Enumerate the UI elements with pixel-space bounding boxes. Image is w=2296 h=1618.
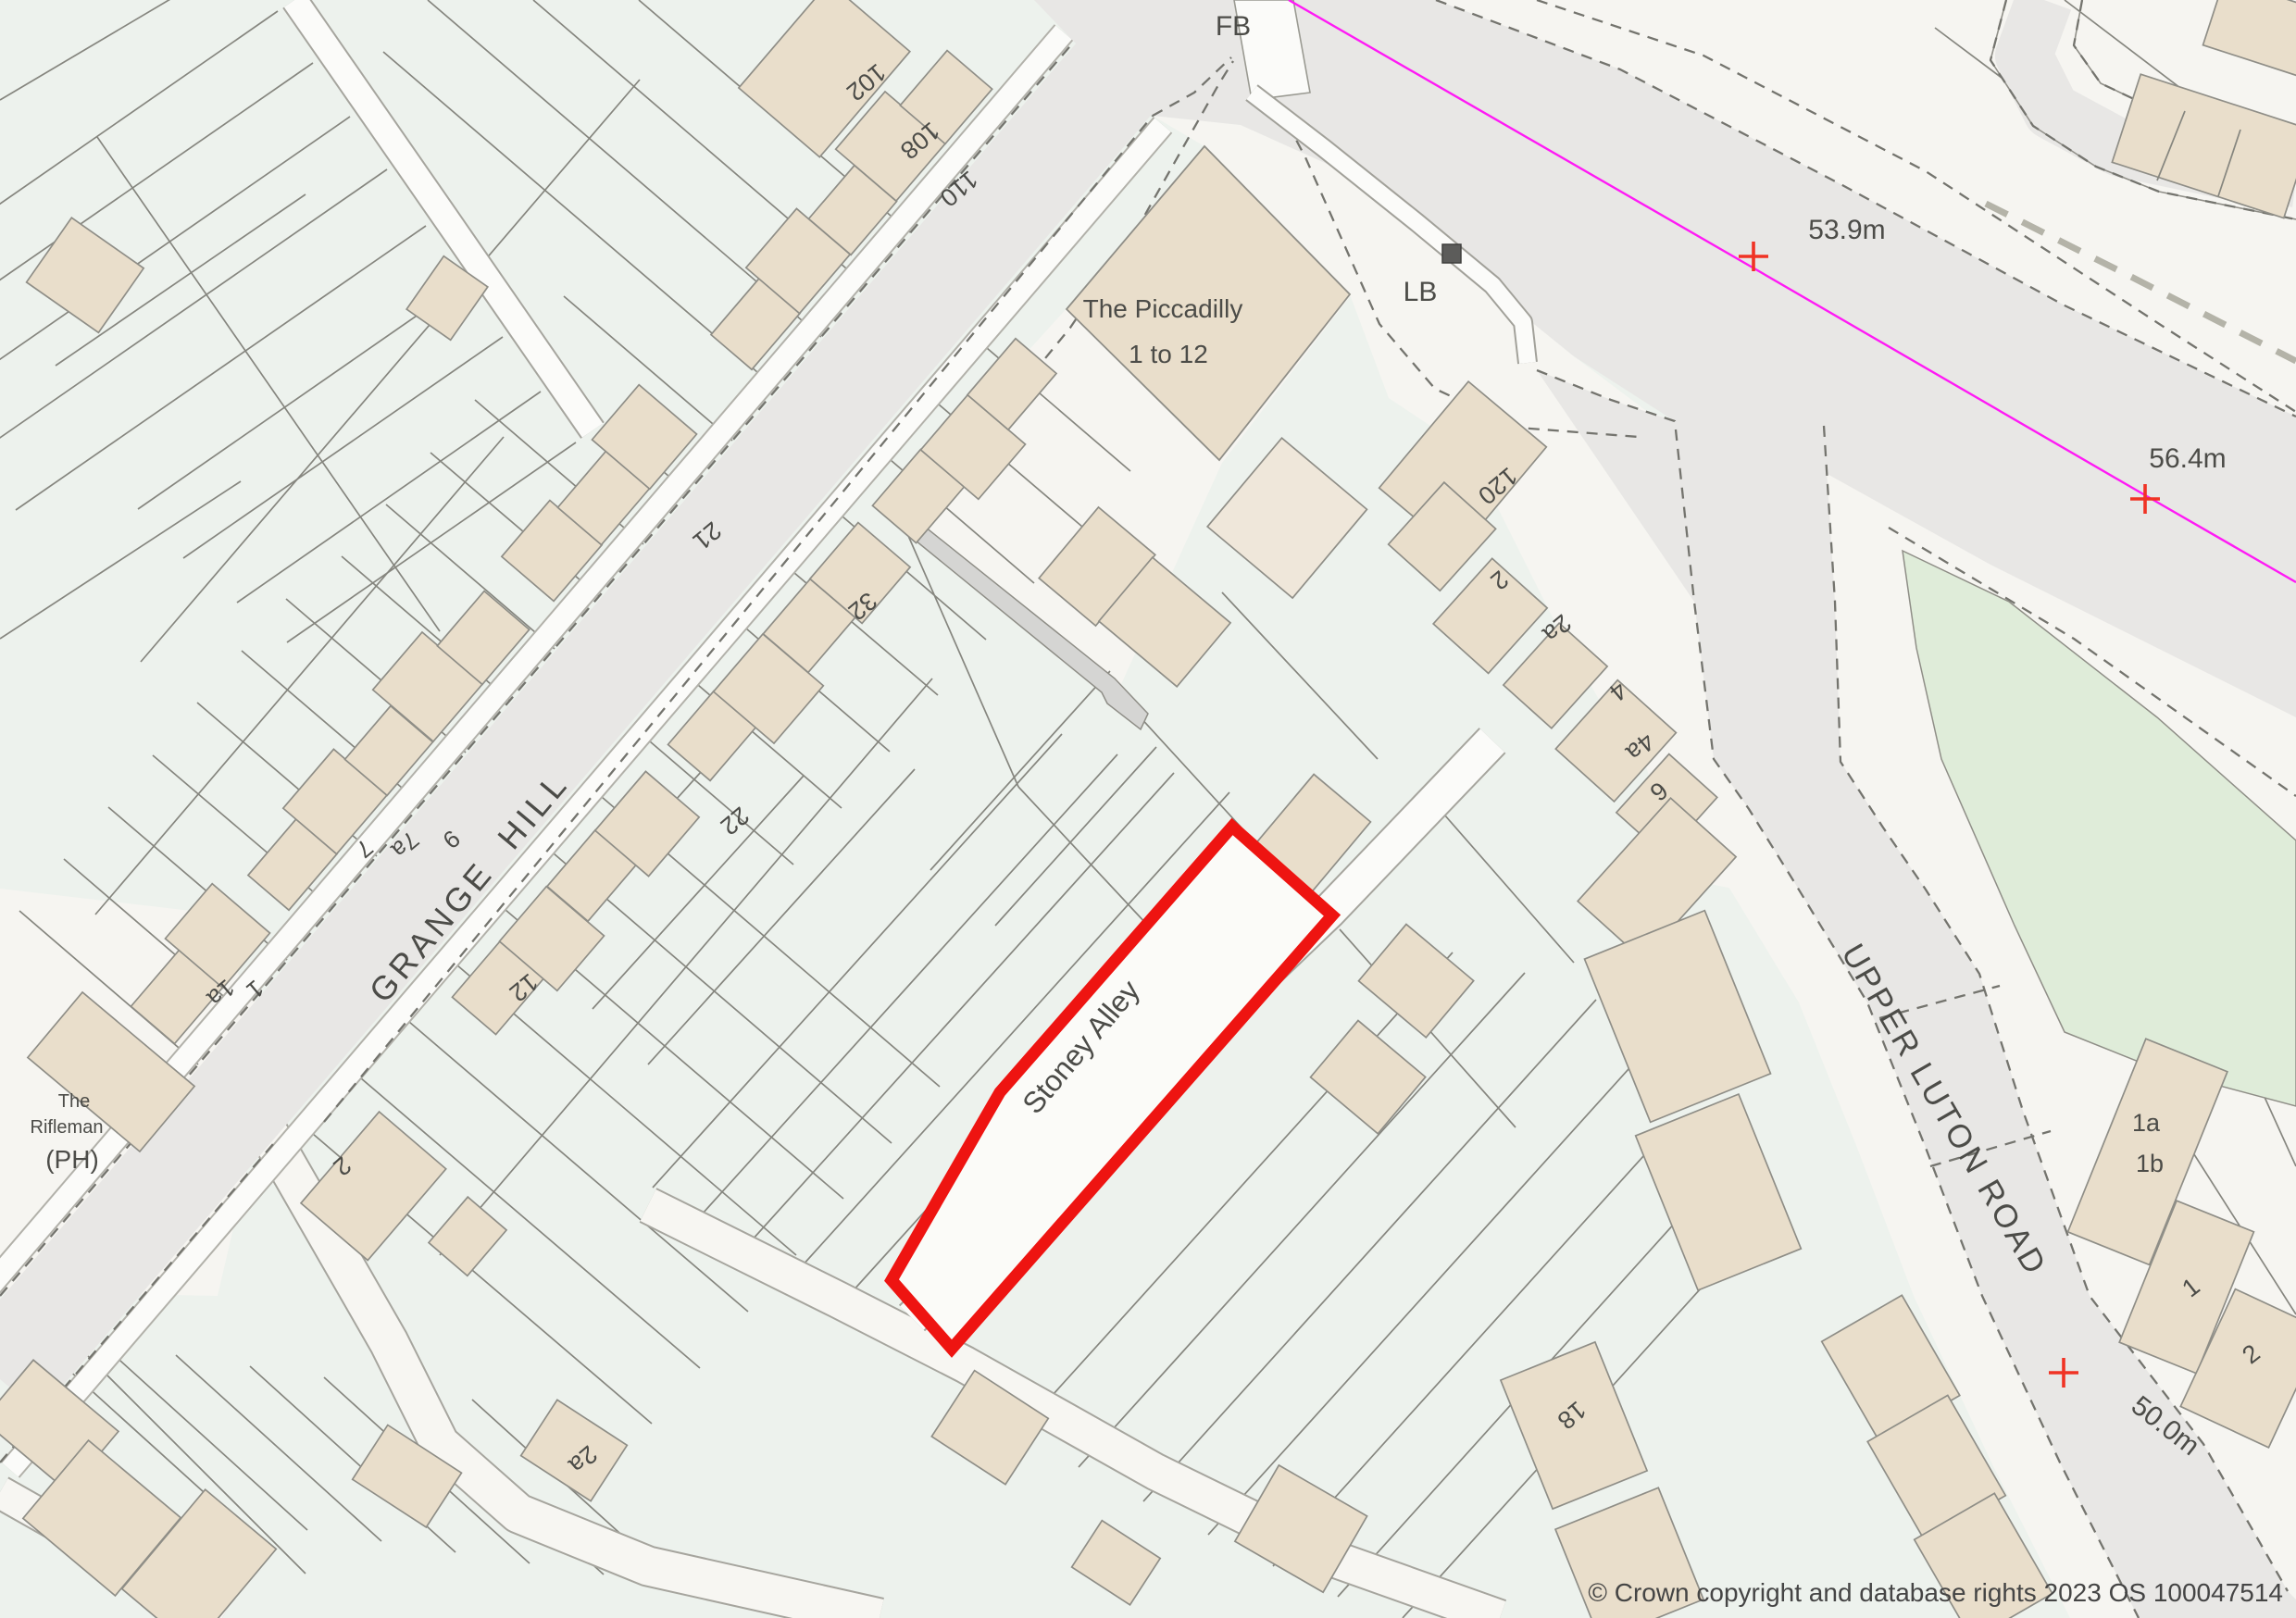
svg-text:1b: 1b — [2136, 1150, 2164, 1177]
svg-text:FB: FB — [1216, 11, 1251, 42]
svg-text:1 to 12: 1 to 12 — [1129, 340, 1208, 368]
svg-text:© Crown copyright and database: © Crown copyright and database rights 20… — [1588, 1578, 2283, 1607]
svg-text:53.9m: 53.9m — [1808, 215, 1885, 245]
svg-text:1a: 1a — [2132, 1109, 2161, 1137]
svg-text:Rifleman: Rifleman — [31, 1117, 104, 1138]
svg-text:The: The — [58, 1091, 90, 1112]
svg-text:LB: LB — [1404, 277, 1438, 307]
svg-text:The Piccadilly: The Piccadilly — [1083, 294, 1243, 323]
svg-text:(PH): (PH) — [45, 1145, 99, 1174]
svg-text:56.4m: 56.4m — [2149, 443, 2226, 474]
